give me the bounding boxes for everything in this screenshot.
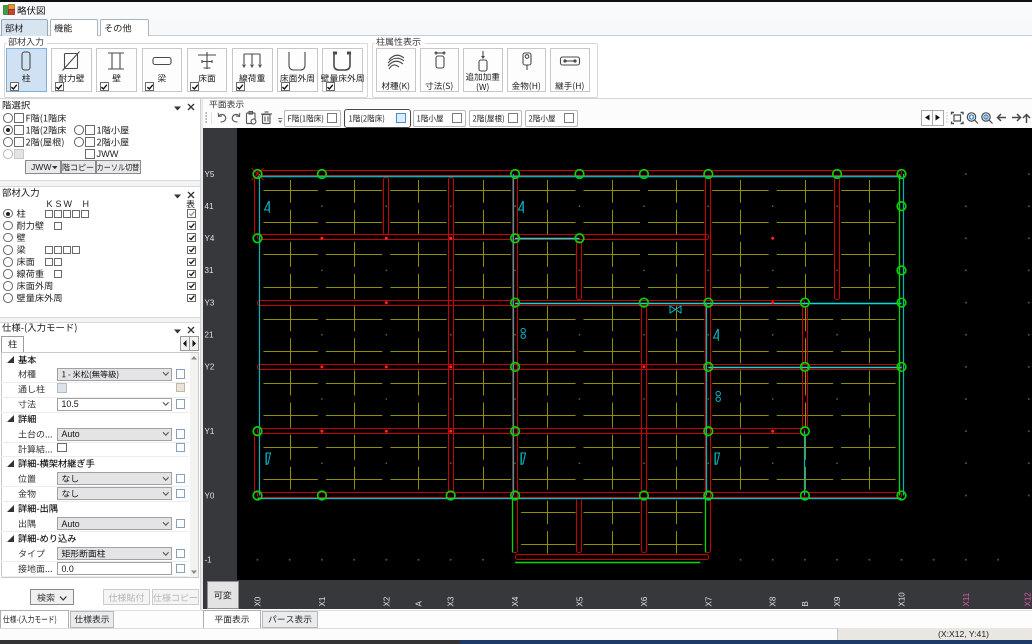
svg-text:X2: X2 [382,596,391,606]
svg-text:A: A [415,601,424,607]
svg-text:Y1: Y1 [205,427,215,436]
svg-text:B: B [801,601,810,606]
svg-text:31: 31 [205,266,214,275]
svg-text:X1: X1 [318,596,327,606]
svg-text:X10: X10 [898,592,907,607]
svg-text:Y2: Y2 [205,363,215,372]
svg-text:X0: X0 [254,596,263,606]
svg-text:Y0: Y0 [205,491,215,500]
svg-text:X4: X4 [511,596,520,606]
svg-text:X5: X5 [576,596,585,606]
svg-text:X7: X7 [704,596,713,606]
svg-text:X6: X6 [640,596,649,606]
svg-text:X9: X9 [833,596,842,606]
svg-text:X11: X11 [962,592,971,606]
svg-text:X3: X3 [447,596,456,606]
svg-text:Y5: Y5 [205,170,215,179]
svg-text:21: 21 [205,331,214,340]
svg-text:41: 41 [205,202,214,211]
svg-text:X8: X8 [769,596,778,606]
svg-text:X12: X12 [1024,592,1032,607]
svg-text:Y4: Y4 [205,234,215,243]
svg-text:-1: -1 [205,556,213,565]
svg-text:Y3: Y3 [205,298,215,307]
